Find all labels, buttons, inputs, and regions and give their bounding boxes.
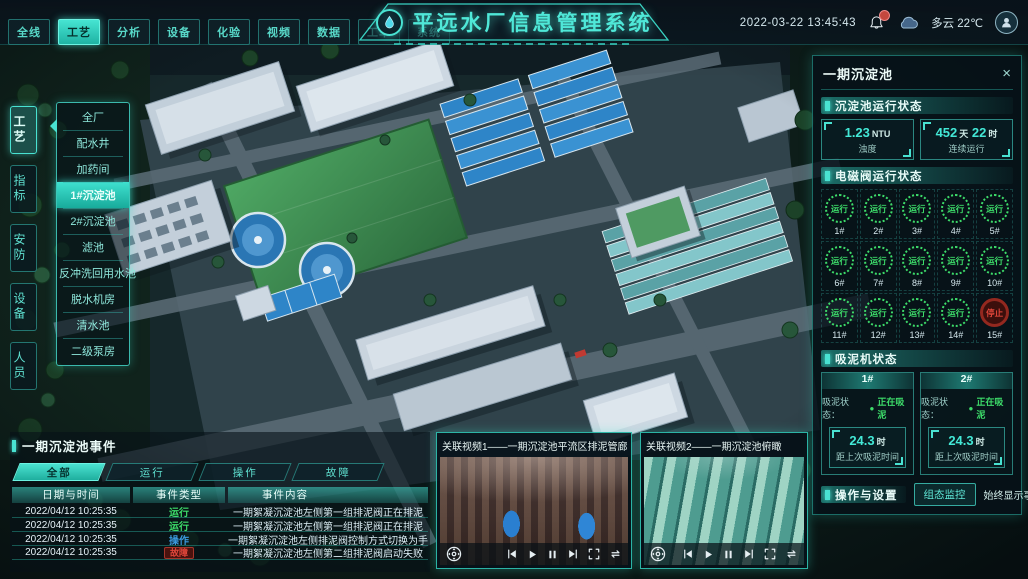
valve-status-gauge: 运行 (864, 298, 893, 327)
event-content: 一期絮凝沉淀池左侧第二组排泥阀启动失败 (228, 545, 428, 560)
top-nav-tab[interactable]: 设备 (158, 19, 200, 45)
valve-cell[interactable]: 运行 2# (860, 189, 897, 239)
datetime: 2022-03-22 13:45:43 (740, 17, 856, 29)
show-events-toggle-label: 始终显示事件： (984, 487, 1028, 502)
section-title: 沉淀池运行状态 (835, 98, 923, 114)
pause-icon[interactable] (547, 549, 558, 560)
valve-cell[interactable]: 运行 10# (976, 241, 1013, 291)
valve-id: 5# (990, 226, 1000, 236)
mud-time-label: 距上次吸泥时间 (832, 450, 903, 463)
video-screen[interactable] (644, 457, 804, 565)
weather-cloud-icon (897, 15, 919, 30)
play-icon[interactable] (703, 549, 714, 560)
section-bullet-icon (825, 171, 830, 181)
valve-status-text: 运行 (947, 203, 964, 215)
mud-status-label: 吸泥状态： (822, 395, 867, 421)
col-event-type: 事件类型 (133, 487, 225, 503)
mud-time-card: 24.3时 距上次吸泥时间 (928, 427, 1005, 468)
submenu-item-label: 全厂 (82, 112, 104, 124)
submenu-item-label: 配水井 (77, 138, 110, 150)
weather-text: 多云 22℃ (931, 15, 983, 31)
valve-status-text: 运行 (908, 203, 925, 215)
side-tab[interactable]: 工艺 (10, 106, 37, 154)
top-nav-tab[interactable]: 工艺 (58, 19, 100, 45)
section-title: 吸泥机状态 (835, 351, 898, 367)
video-control-bar (644, 543, 804, 565)
events-accent-bar (12, 440, 16, 452)
event-row[interactable]: 2022/04/12 10:25:35 运行 一期絮凝沉淀池左侧第一组排泥阀正在… (12, 518, 428, 532)
valve-cell[interactable]: 运行 14# (937, 293, 974, 343)
submenu-item-label: 二级泵房 (71, 346, 115, 358)
uptime-days: 452 (936, 125, 958, 140)
events-table-header: 日期与时间 事件类型 事件内容 (12, 487, 428, 503)
valve-id: 3# (912, 226, 922, 236)
top-nav-tab[interactable]: 数据 (308, 19, 350, 45)
section-bullet-icon (825, 354, 830, 364)
top-nav-tab-label: 化验 (217, 27, 241, 39)
mud-status-label: 吸泥状态： (921, 395, 966, 421)
event-time: 2022/04/12 10:25:35 (12, 534, 130, 545)
submenu-item-label: 1#沉淀池 (70, 190, 115, 202)
mud-time-label: 距上次吸泥时间 (931, 450, 1002, 463)
top-bar: 全线 工艺 分析 设备 化验 视频 数据 工单 系统 (0, 0, 1028, 45)
detail-panel: 一期沉淀池 × 沉淀池运行状态 1.23NTU 浊度 452天 22时 连续运行… (812, 55, 1022, 515)
submenu-item[interactable]: 脱水机房 (57, 286, 129, 312)
pause-icon[interactable] (723, 549, 734, 560)
scada-monitor-button[interactable]: 组态监控 (914, 483, 976, 506)
event-row[interactable]: 2022/04/12 10:25:35 故障 一期絮凝沉淀池左侧第二组排泥阀启动… (12, 546, 428, 560)
events-table-body: 2022/04/12 10:25:35 运行 一期絮凝沉淀池左侧第一组排泥阀正在… (12, 504, 428, 560)
skip-next-icon[interactable] (567, 548, 579, 560)
event-content: 一期絮凝沉淀池左侧第一组排泥阀正在排泥 (228, 504, 428, 519)
fullscreen-icon[interactable] (764, 548, 776, 560)
valve-status-gauge: 运行 (941, 194, 970, 223)
valve-status-gauge: 运行 (980, 194, 1009, 223)
side-tab-label: 安防 (12, 233, 26, 263)
submenu-item-label: 滤池 (82, 242, 104, 254)
valve-cell[interactable]: 停止 15# (976, 293, 1013, 343)
valve-cell[interactable]: 运行 12# (860, 293, 897, 343)
skip-next-icon[interactable] (743, 548, 755, 560)
valve-id: 13# (909, 330, 924, 340)
valve-id: 11# (832, 330, 846, 340)
valve-status-gauge: 停止 (980, 298, 1009, 327)
events-title: 一期沉淀池事件 (22, 436, 117, 455)
valve-id: 7# (873, 278, 883, 288)
valve-status-gauge: 运行 (902, 194, 931, 223)
side-tab-label: 工艺 (12, 115, 26, 145)
valve-id: 2# (873, 226, 883, 236)
skip-previous-icon[interactable] (682, 548, 694, 560)
section-run-status-header: 沉淀池运行状态 (821, 97, 1013, 114)
valve-id: 12# (871, 330, 886, 340)
mud-status-value: 正在吸泥 (976, 395, 1012, 421)
top-nav-tab-label: 视频 (267, 27, 291, 39)
events-tab-label: 故障 (326, 465, 351, 480)
alert-badge (879, 10, 890, 21)
fullscreen-icon[interactable] (588, 548, 600, 560)
valve-cell[interactable]: 运行 6# (821, 241, 858, 291)
top-nav-tab-label: 设备 (167, 27, 191, 39)
uptime-card: 452天 22时 连续运行 (920, 119, 1013, 160)
uptime-hours-unit: 时 (988, 129, 997, 139)
uptime-days-unit: 天 (959, 129, 968, 139)
status-dot-icon: ● (969, 404, 974, 413)
valve-status-text: 运行 (947, 255, 964, 267)
top-nav-tab[interactable]: 视频 (258, 19, 300, 45)
valve-status-text: 运行 (870, 255, 887, 267)
event-content: 一期絮凝沉淀池左侧第一组排泥阀正在排泥 (228, 518, 428, 533)
mud-machine-id: 1# (822, 373, 913, 389)
play-icon[interactable] (527, 549, 538, 560)
mud-time-card: 24.3时 距上次吸泥时间 (829, 427, 906, 468)
events-tab[interactable]: 操作 (198, 463, 291, 481)
top-nav-tab[interactable]: 分析 (108, 19, 150, 45)
submenu-item-label: 反冲洗回用水池 (59, 268, 136, 280)
submenu-item-label: 清水池 (77, 320, 110, 332)
dashboard-root: 全线 工艺 分析 设备 化验 视频 数据 工单 系统 (0, 0, 1028, 579)
section-ops-header: 操作与设置 (821, 486, 906, 503)
section-valves-header: 电磁阀运行状态 (821, 167, 1013, 184)
top-nav-tab-label: 工艺 (67, 27, 91, 39)
close-icon[interactable]: × (1002, 66, 1011, 81)
submenu-item[interactable]: 二级泵房 (57, 338, 129, 364)
side-tab[interactable]: 安防 (10, 224, 37, 272)
top-nav-tab-label: 数据 (317, 27, 341, 39)
events-tab-label: 运行 (140, 465, 165, 480)
turbidity-value: 1.23 (845, 125, 870, 140)
col-date-time: 日期与时间 (12, 487, 130, 503)
valve-status-text: 运行 (986, 255, 1003, 267)
submenu-item-label: 加药间 (77, 164, 110, 176)
valve-status-text: 运行 (831, 203, 848, 215)
submenu-item[interactable]: 加药间 (57, 156, 129, 182)
video-panel: 关联视频2——一期沉淀池俯瞰 (640, 432, 808, 569)
ops-settings-row: 操作与设置 组态监控 始终显示事件： (821, 483, 1013, 506)
valve-status-text: 运行 (831, 255, 848, 267)
side-tab-label: 指标 (12, 174, 26, 204)
event-type-badge: 运行 (133, 518, 225, 533)
valve-cell[interactable]: 运行 8# (899, 241, 936, 291)
valve-status-gauge: 运行 (902, 298, 931, 327)
valve-status-text: 停止 (986, 307, 1003, 319)
top-nav-tab[interactable]: 全线 (8, 19, 50, 45)
valve-cell[interactable]: 运行 1# (821, 189, 858, 239)
process-submenu: 全厂 配水井 加药间 1#沉淀池 2#沉淀池 滤池 反冲洗回用水池 脱水机房 清… (56, 102, 130, 366)
uptime-hours: 22 (972, 125, 986, 140)
ptz-pad-icon[interactable] (446, 546, 462, 562)
video-title: 关联视频2——一期沉淀池俯瞰 (644, 436, 804, 457)
top-nav-tab-label: 分析 (117, 27, 141, 39)
side-tab-bar: 工艺 指标 安防 设备 人员 (10, 106, 37, 390)
valve-status-gauge: 运行 (864, 246, 893, 275)
turbidity-card: 1.23NTU 浊度 (821, 119, 914, 160)
valve-cell[interactable]: 运行 13# (899, 293, 936, 343)
events-tab-label: 操作 (233, 465, 258, 480)
loop-icon[interactable] (785, 548, 798, 560)
valve-cell[interactable]: 运行 7# (860, 241, 897, 291)
loop-icon[interactable] (609, 548, 622, 560)
valve-status-text: 运行 (908, 307, 925, 319)
valve-status-gauge: 运行 (941, 298, 970, 327)
valve-status-gauge: 运行 (825, 298, 854, 327)
valve-id: 1# (834, 226, 844, 236)
side-tab[interactable]: 设备 (10, 283, 37, 331)
event-row[interactable]: 2022/04/12 10:25:35 操作 一期絮凝沉淀池左侧排泥阀控制方式切… (12, 532, 428, 546)
events-tab-bar: 全部 运行 操作 故障 (16, 463, 430, 481)
events-tab[interactable]: 运行 (105, 463, 198, 481)
submenu-item[interactable]: 2#沉淀池 (57, 208, 129, 234)
video-panel: 关联视频1——一期沉淀池平流区排泥管廊 (436, 432, 632, 569)
mud-time-value: 24.3 (849, 433, 874, 448)
submenu-item[interactable]: 滤池 (57, 234, 129, 260)
title-block: 平远水厂信息管理系统 (354, 0, 674, 45)
valve-id: 6# (834, 278, 844, 288)
top-nav-tab-label: 全线 (17, 27, 41, 39)
top-nav-tab[interactable]: 化验 (208, 19, 250, 45)
valve-status-gauge: 运行 (825, 194, 854, 223)
turbidity-label: 浊度 (824, 142, 911, 155)
status-dot-icon: ● (870, 404, 875, 413)
valve-status-gauge: 运行 (825, 246, 854, 275)
valve-status-gauge: 运行 (980, 246, 1009, 275)
mud-machine-card: 2# 吸泥状态： ● 正在吸泥 24.3时 距上次吸泥时间 (920, 372, 1013, 475)
valve-status-gauge: 运行 (902, 246, 931, 275)
valve-status-gauge: 运行 (864, 194, 893, 223)
valve-id: 15# (987, 330, 1002, 340)
side-tab-label: 设备 (12, 292, 26, 322)
valve-cell[interactable]: 运行 4# (937, 189, 974, 239)
section-bullet-icon (825, 101, 830, 111)
event-type-badge: 操作 (133, 532, 225, 547)
valve-status-text: 运行 (831, 307, 848, 319)
section-title: 操作与设置 (835, 487, 898, 503)
mud-machine-id: 2# (921, 373, 1012, 389)
valve-cell[interactable]: 运行 3# (899, 189, 936, 239)
submenu-item[interactable]: 全厂 (57, 104, 129, 130)
valve-cell[interactable]: 运行 11# (821, 293, 858, 343)
video-title: 关联视频1——一期沉淀池平流区排泥管廊 (440, 436, 628, 457)
side-tab[interactable]: 人员 (10, 342, 37, 390)
skip-previous-icon[interactable] (506, 548, 518, 560)
valve-grid: 运行 1# 运行 2# 运行 3# 运行 4# (821, 189, 1013, 343)
mud-time-unit: 时 (877, 437, 886, 447)
valve-status-gauge: 运行 (941, 246, 970, 275)
uptime-label: 连续运行 (923, 142, 1010, 155)
mud-machine-row: 1# 吸泥状态： ● 正在吸泥 24.3时 距上次吸泥时间 2# 吸泥状态： (821, 372, 1013, 475)
section-bullet-icon (825, 490, 830, 500)
event-time: 2022/04/12 10:25:35 (12, 506, 130, 517)
app-logo-icon (376, 9, 403, 36)
panel-title: 一期沉淀池 (823, 64, 893, 83)
event-row[interactable]: 2022/04/12 10:25:35 运行 一期絮凝沉淀池左侧第一组排泥阀正在… (12, 504, 428, 518)
mud-time-value: 24.3 (948, 433, 973, 448)
event-time: 2022/04/12 10:25:35 (12, 520, 130, 531)
valve-status-text: 运行 (870, 307, 887, 319)
section-title: 电磁阀运行状态 (835, 168, 923, 184)
app-title: 平远水厂信息管理系统 (413, 7, 653, 37)
valve-status-text: 运行 (986, 203, 1003, 215)
valve-status-text: 运行 (908, 255, 925, 267)
valve-id: 4# (951, 226, 961, 236)
side-tab-label: 人员 (12, 351, 26, 381)
valve-cell[interactable]: 运行 5# (976, 189, 1013, 239)
mud-status-value: 正在吸泥 (877, 395, 913, 421)
valve-id: 8# (912, 278, 922, 288)
valve-status-text: 运行 (947, 307, 964, 319)
mud-time-unit: 时 (976, 437, 985, 447)
submenu-item[interactable]: 1#沉淀池 (57, 182, 129, 208)
valve-id: 14# (948, 330, 963, 340)
turbidity-unit: NTU (872, 129, 891, 139)
event-time: 2022/04/12 10:25:35 (12, 547, 130, 558)
events-tab-label: 全部 (47, 465, 72, 480)
video-screen[interactable] (440, 457, 628, 565)
col-event-content: 事件内容 (228, 487, 428, 503)
submenu-item-label: 脱水机房 (71, 294, 115, 306)
valve-id: 10# (987, 278, 1002, 288)
valve-id: 9# (951, 278, 961, 288)
events-tab[interactable]: 故障 (291, 463, 384, 481)
event-type-badge: 运行 (133, 504, 225, 519)
mud-machine-card: 1# 吸泥状态： ● 正在吸泥 24.3时 距上次吸泥时间 (821, 372, 914, 475)
submenu-item[interactable]: 清水池 (57, 312, 129, 338)
submenu-item-label: 2#沉淀池 (70, 216, 115, 228)
side-tab[interactable]: 指标 (10, 165, 37, 213)
user-avatar[interactable] (995, 11, 1018, 34)
events-panel: 一期沉淀池事件 全部 运行 操作 故障 日期与时间 事件类型 事件内容 2022… (10, 432, 430, 572)
events-tab[interactable]: 全部 (12, 463, 105, 481)
notifications-bell-icon[interactable] (868, 14, 885, 31)
ptz-pad-icon[interactable] (650, 546, 666, 562)
submenu-item[interactable]: 配水井 (57, 130, 129, 156)
event-type-badge: 故障 (133, 546, 225, 559)
submenu-item[interactable]: 反冲洗回用水池 (57, 260, 129, 286)
valve-status-text: 运行 (870, 203, 887, 215)
section-mud-header: 吸泥机状态 (821, 350, 1013, 367)
video-control-bar (440, 543, 628, 565)
valve-cell[interactable]: 运行 9# (937, 241, 974, 291)
